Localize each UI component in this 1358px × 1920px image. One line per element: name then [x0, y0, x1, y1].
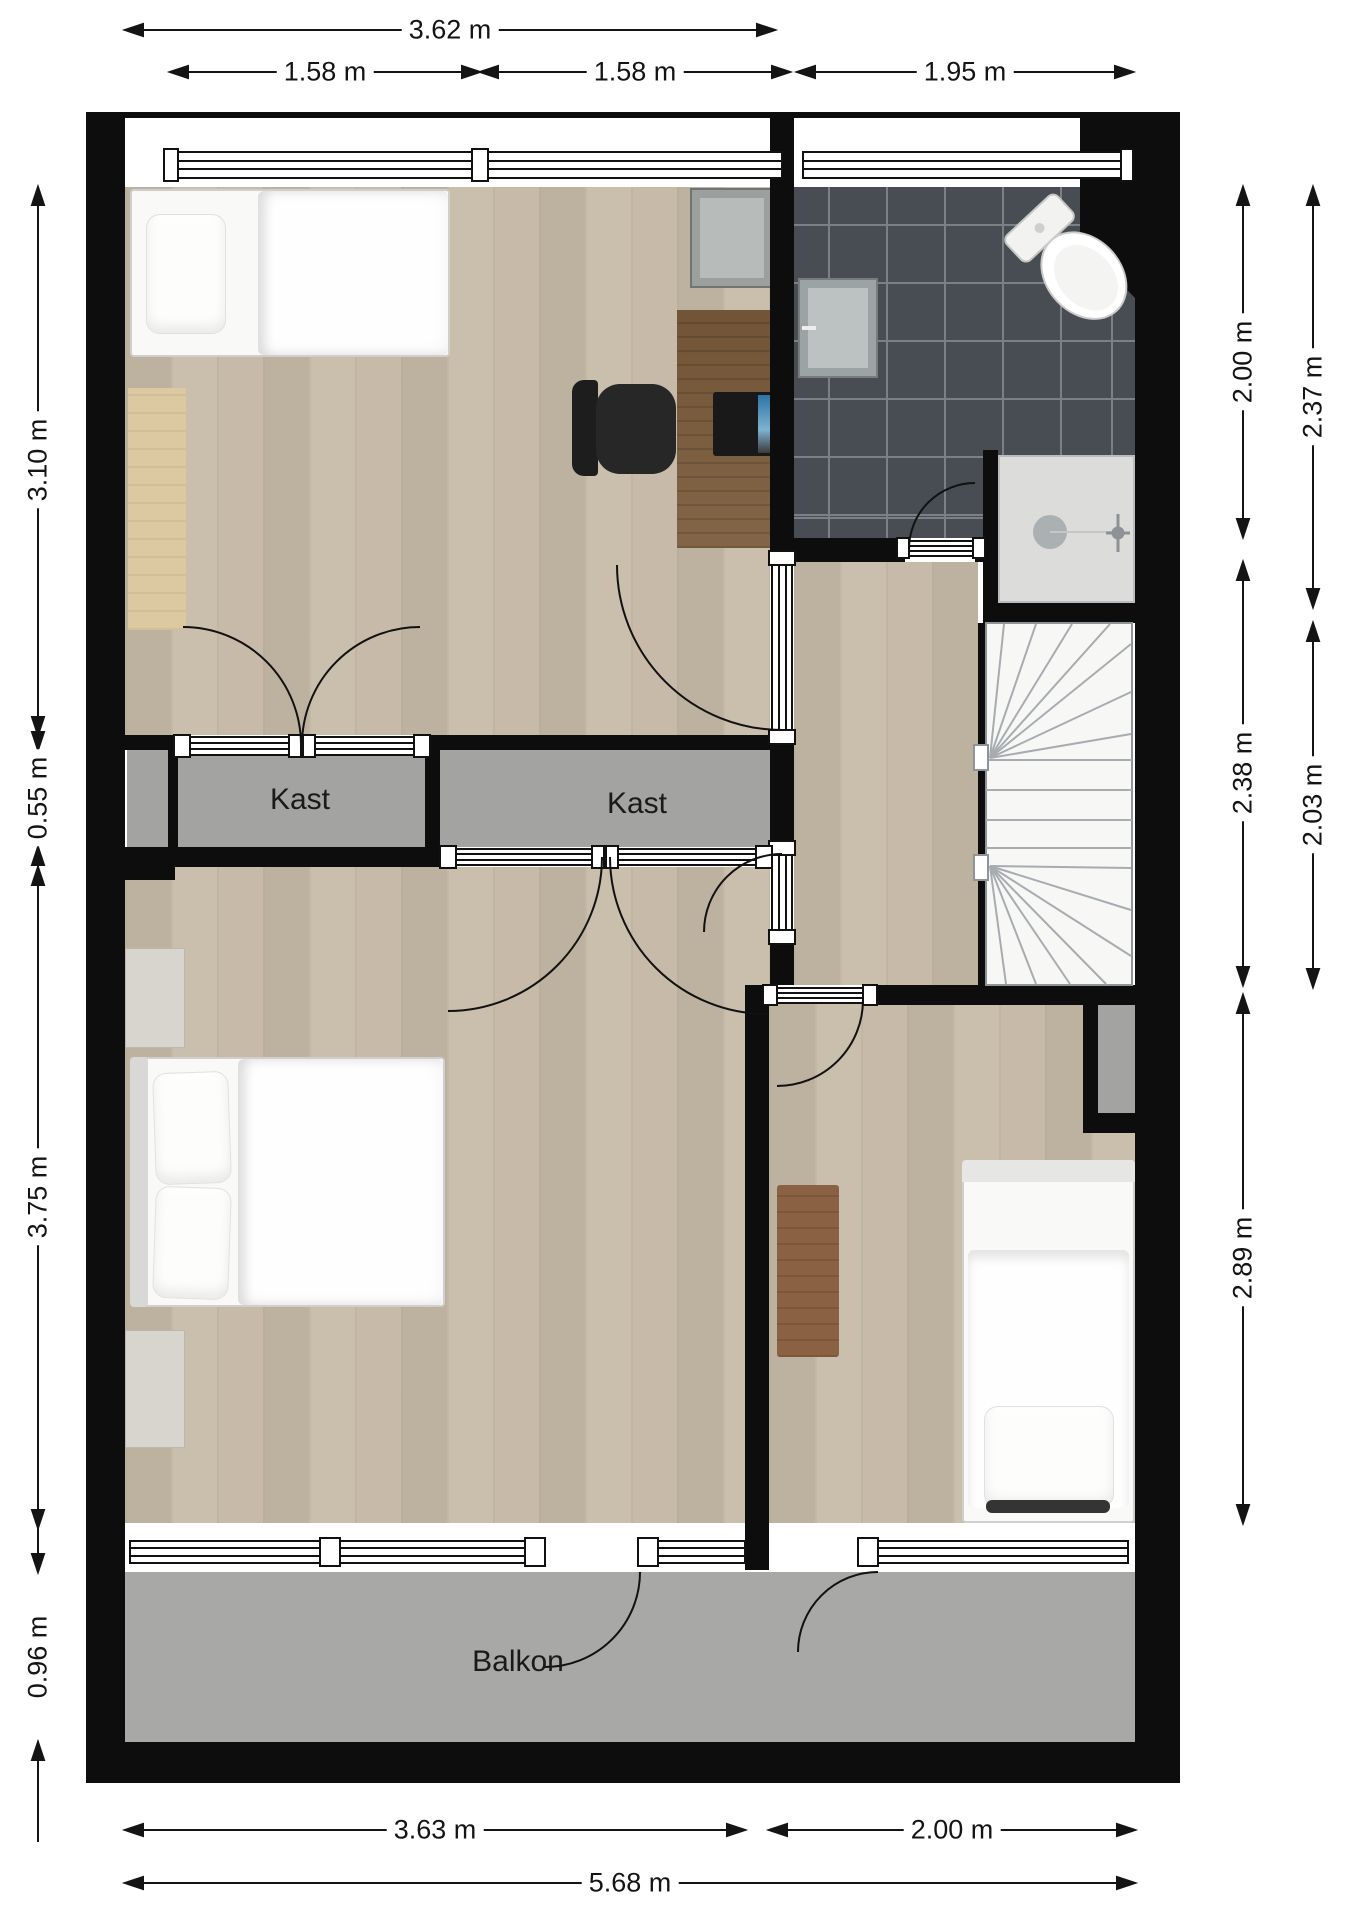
window-band-bottom: [125, 1523, 1135, 1572]
dim-top-bathroom: 1.95 m: [917, 55, 1014, 90]
closet-kast-right: [440, 750, 770, 847]
bed-double-pillow-2: [152, 1186, 232, 1301]
bathroom-sink-cabinet: [798, 278, 878, 378]
wall-divider-mid: [770, 732, 794, 853]
dim-right-outer-stairs: 2.03 m: [1296, 757, 1331, 854]
sink-handle: [802, 326, 816, 330]
bed-single-top-duvet: [258, 191, 448, 355]
dim-left-bedroom-top: 3.10 m: [21, 412, 56, 509]
room-label-balkon: Balkon: [472, 1645, 564, 1679]
wall-shower-left: [983, 450, 998, 618]
wall-kast-top-a: [125, 735, 180, 750]
nightstand-top: [125, 948, 185, 1048]
wall-stairs-top: [983, 603, 1135, 623]
dim-left-master: 3.75 m: [21, 1149, 56, 1246]
dim-bottom-master: 3.63 m: [387, 1813, 484, 1848]
bed-single-right-blanket-edge: [986, 1500, 1110, 1513]
laptop: [713, 392, 773, 456]
window-band-top: [125, 116, 1135, 187]
dim-left-balcony: 0.96 m: [21, 1609, 56, 1706]
niche-bedroom-right: [1098, 1005, 1135, 1113]
dim-right-bedroom: 2.89 m: [1226, 1210, 1261, 1307]
floor-balcony: [125, 1572, 1135, 1742]
dim-right-outer-top: 2.37 m: [1296, 349, 1331, 446]
wall-niche-left: [127, 750, 168, 847]
bed-single-right-headboard: [962, 1160, 1135, 1182]
floorplan-page: { "floorplan": { "type": "2d-floorplan-t…: [0, 0, 1358, 1920]
dim-left-kast: 0.55 m: [21, 750, 56, 847]
stairs: [974, 623, 1132, 985]
cabinet-inner: [700, 198, 764, 278]
wall-stairs-bottom-a: [745, 985, 775, 1005]
bed-double-pillow-1: [152, 1071, 232, 1186]
wall-stairs-left: [978, 623, 986, 987]
office-chair-seat: [596, 384, 676, 474]
wall-jog-left: [125, 860, 175, 880]
wall-stairs-bottom-b: [865, 985, 1135, 1005]
wall-kast-niche: [168, 750, 178, 847]
bed-single-right-pillow: [984, 1406, 1114, 1508]
wall-divider-upper: [770, 118, 794, 562]
cabinet-bedroom-top: [690, 188, 774, 288]
wall-exterior-bottom: [86, 1742, 1180, 1783]
wall-divider-mid2: [770, 932, 794, 985]
wall-kast-top-b: [422, 735, 770, 750]
wall-niche-horizontal: [1083, 1113, 1135, 1133]
room-label-kast-right: Kast: [607, 787, 667, 821]
dim-top-window-left: 1.58 m: [277, 55, 374, 90]
sink-inner: [808, 288, 868, 368]
dim-right-hall: 2.38 m: [1226, 725, 1261, 822]
dim-right-bathroom: 2.00 m: [1226, 314, 1261, 411]
floor-hallway: [794, 562, 978, 985]
room-label-kast-left: Kast: [270, 783, 330, 817]
wall-exterior-top-line: [86, 112, 1180, 118]
dim-top-total: 3.62 m: [402, 13, 499, 48]
wall-bathroom-south-a: [770, 538, 905, 562]
dim-top-window-right: 1.58 m: [587, 55, 684, 90]
nightstand-bottom: [125, 1330, 185, 1448]
dim-bottom-total: 5.68 m: [582, 1866, 679, 1901]
office-chair-back: [572, 380, 598, 476]
bed-single-top-pillow: [146, 214, 226, 334]
wall-exterior-right: [1135, 112, 1180, 1783]
wall-exterior-left: [86, 112, 125, 1783]
rug-bedroom-right: [777, 1185, 839, 1357]
wall-divider-lower: [745, 985, 769, 1570]
shower-tray: [998, 455, 1135, 603]
rug-bedroom-top-left: [128, 388, 186, 630]
dim-bottom-bedroom: 2.00 m: [904, 1813, 1001, 1848]
bed-double-duvet: [238, 1059, 443, 1305]
bed-double-headboard: [130, 1057, 148, 1307]
